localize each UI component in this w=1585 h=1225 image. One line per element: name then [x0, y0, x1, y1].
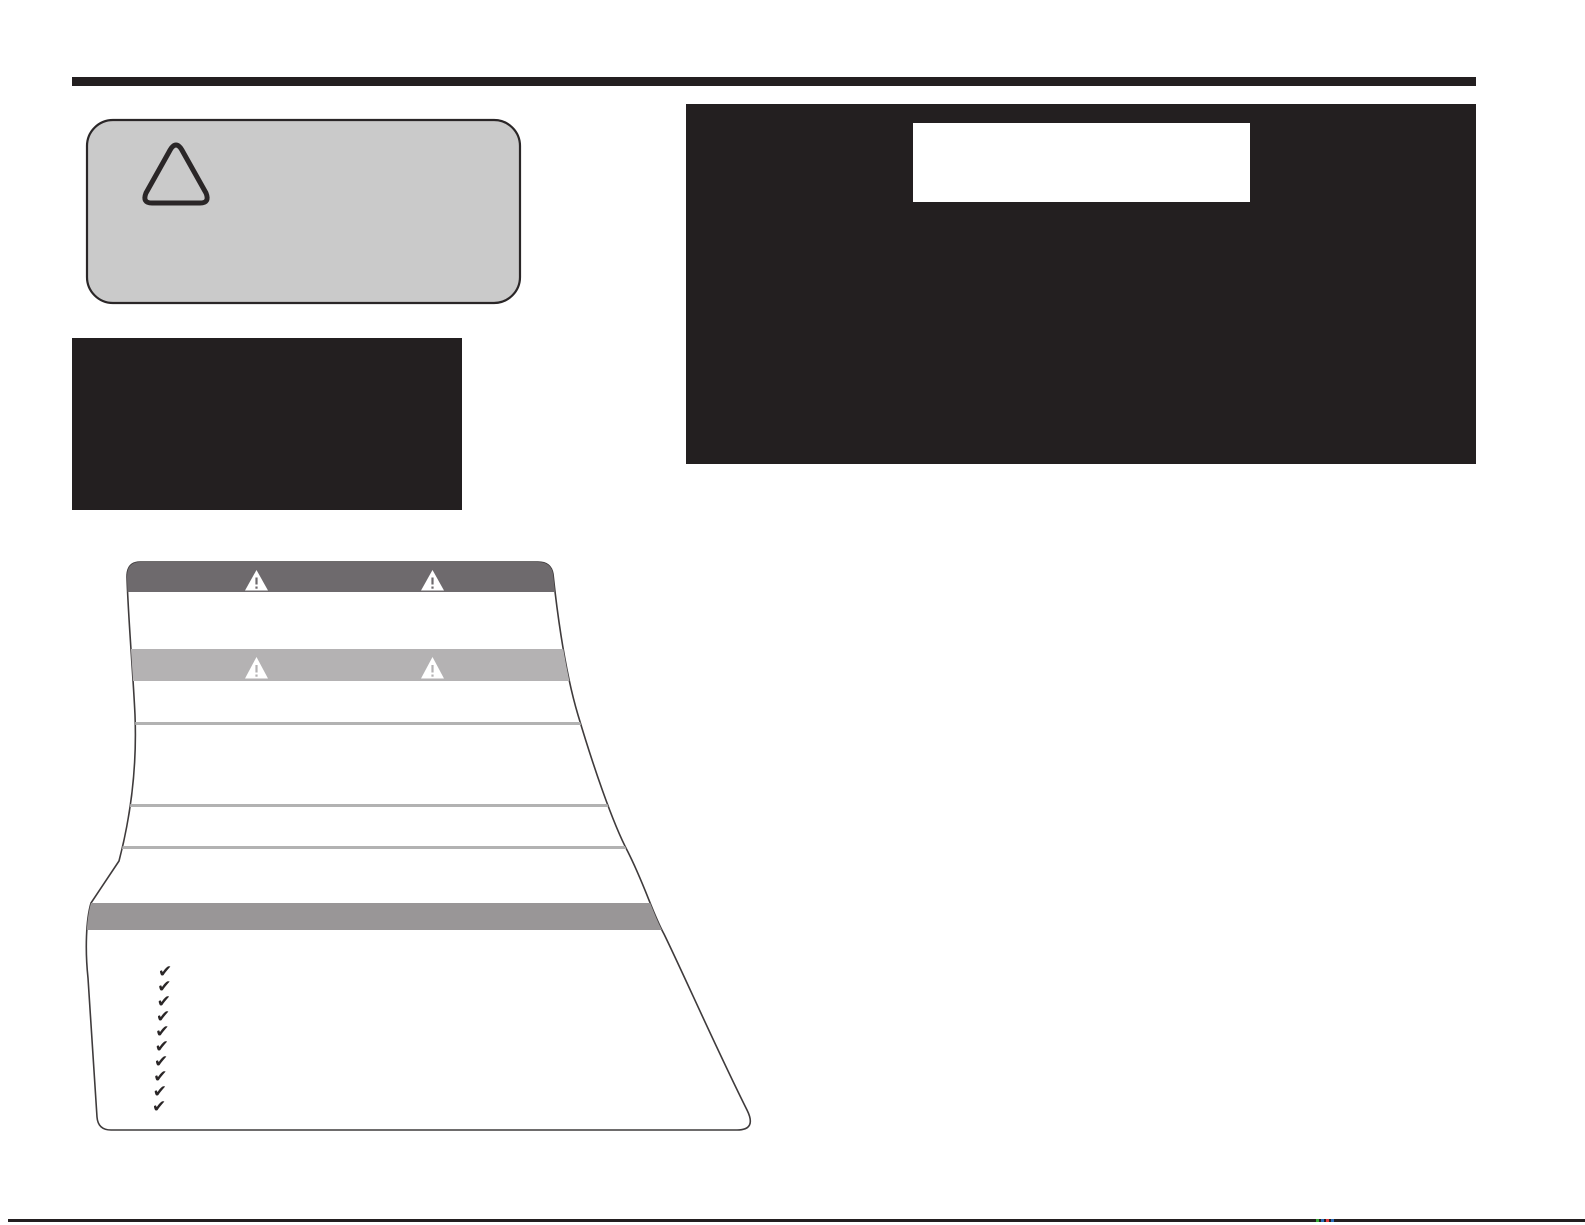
page-canvas: ✔ ✔ ✔ ✔ ✔ ✔ ✔ ✔ ✔ ✔ — [0, 0, 1585, 1225]
manual-page: ✔ ✔ ✔ ✔ ✔ ✔ ✔ ✔ ✔ ✔ — [0, 0, 1585, 1225]
top-rule — [72, 77, 1476, 86]
label-divider-line — [110, 804, 620, 807]
info-panel-window — [913, 123, 1250, 202]
checklist-checkmark: ✔ — [152, 1097, 166, 1117]
warning-callout-box — [87, 120, 520, 303]
label-header-band — [110, 562, 580, 592]
label-caution-band — [110, 649, 590, 681]
safety-label-diagram: ✔ ✔ ✔ ✔ ✔ ✔ ✔ ✔ ✔ ✔ — [75, 562, 750, 1130]
label-footer-band — [75, 903, 675, 930]
label-divider-line — [110, 846, 640, 849]
label-divider-line — [110, 722, 600, 725]
bottom-rule — [8, 1219, 1585, 1222]
left-warning-panel — [72, 338, 462, 510]
